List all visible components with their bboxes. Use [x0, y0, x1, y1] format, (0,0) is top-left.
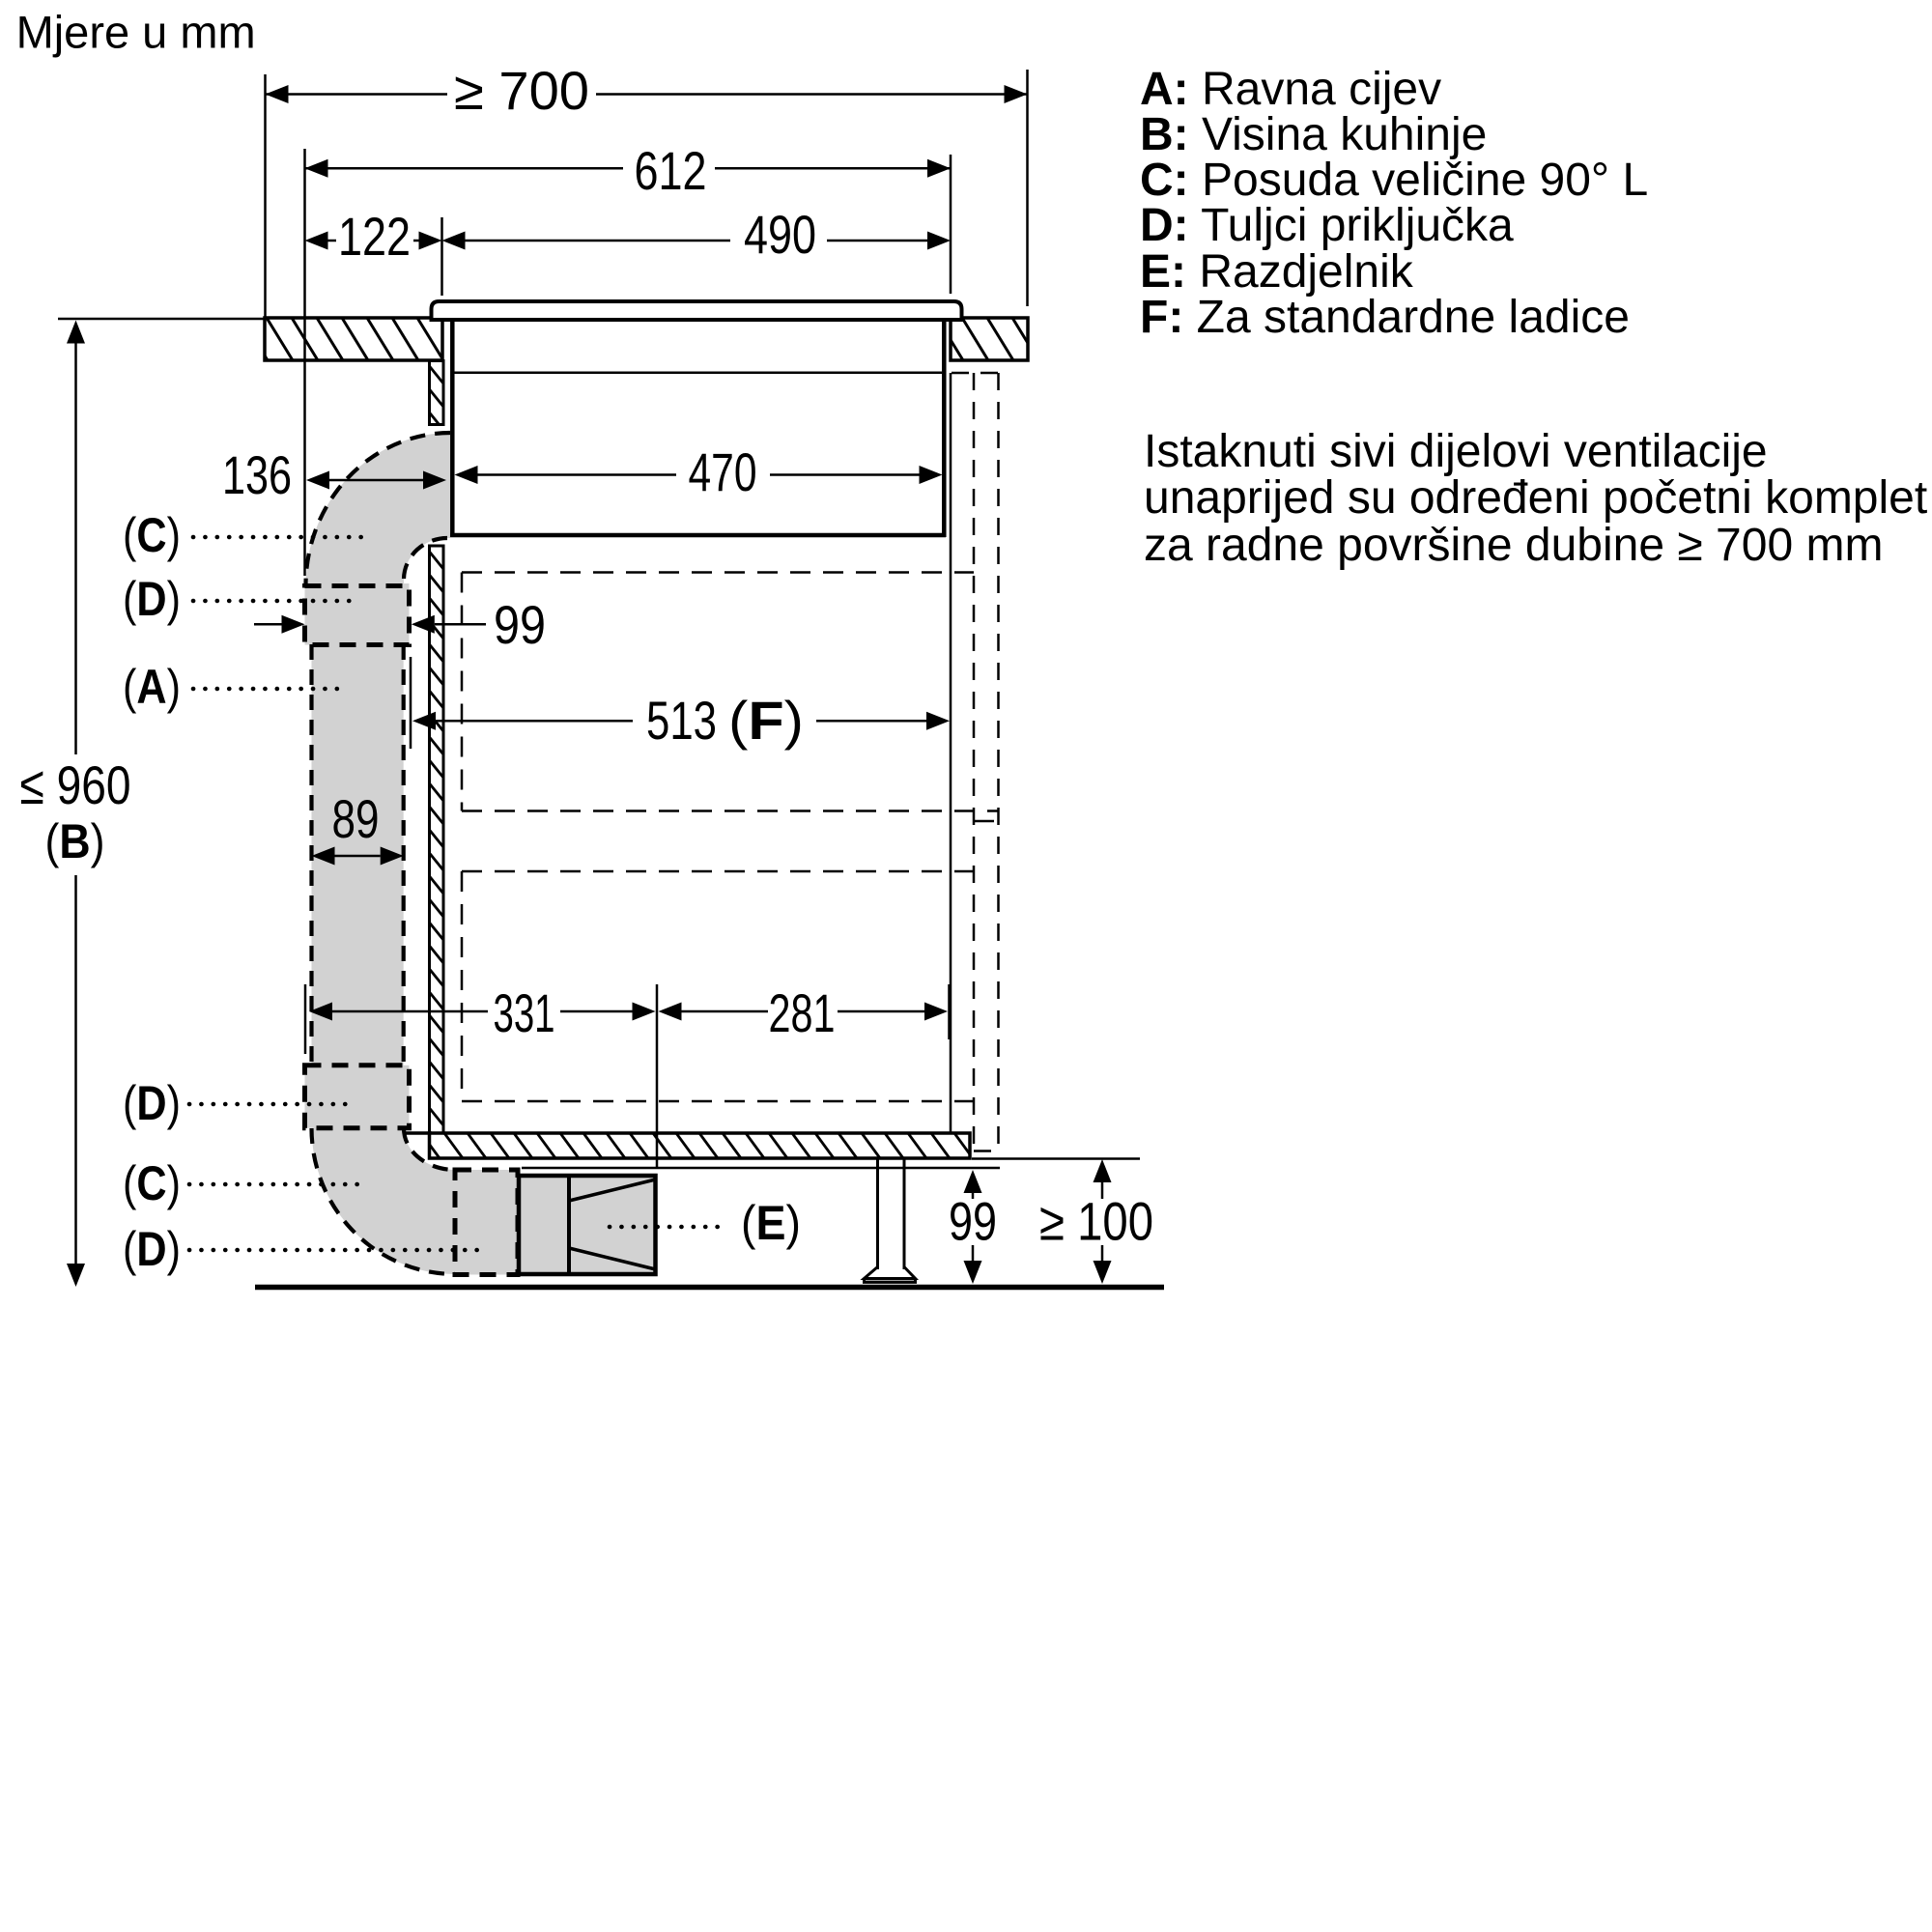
svg-text:89: 89 — [332, 788, 380, 849]
svg-text:281: 281 — [769, 982, 836, 1043]
svg-text:136: 136 — [222, 444, 292, 505]
svg-text:470: 470 — [689, 441, 757, 502]
svg-text:C: Posuda veličine 90° L: C: Posuda veličine 90° L — [1140, 155, 1648, 206]
svg-text:612: 612 — [635, 140, 707, 201]
svg-text:F: Za standardne ladice: F: Za standardne ladice — [1140, 292, 1630, 343]
svg-text:(C): (C) — [123, 508, 181, 562]
svg-text:490: 490 — [744, 204, 816, 265]
svg-text:(D): (D) — [123, 572, 181, 626]
svg-text:≥ 100: ≥ 100 — [1039, 1191, 1153, 1252]
svg-text:unaprijed su određeni početni: unaprijed su određeni početni komplet — [1144, 472, 1927, 524]
svg-text:(E): (E) — [741, 1196, 801, 1250]
svg-text:(A): (A) — [123, 660, 181, 714]
svg-text:za radne površine dubine ≥ 700: za radne površine dubine ≥ 700 mm — [1144, 520, 1883, 571]
svg-text:99: 99 — [949, 1191, 997, 1252]
svg-text:(B): (B) — [45, 814, 105, 868]
svg-text:≥ 700: ≥ 700 — [454, 60, 589, 121]
svg-text:(D): (D) — [123, 1076, 181, 1130]
svg-text:513: 513 — [646, 690, 717, 751]
svg-text:331: 331 — [494, 982, 555, 1043]
svg-text:99: 99 — [494, 594, 546, 655]
svg-text:(F): (F) — [728, 690, 804, 751]
svg-text:Mjere u mm: Mjere u mm — [16, 7, 256, 58]
svg-text:≤ 960: ≤ 960 — [20, 754, 131, 815]
svg-text:B: Visina kuhinje: B: Visina kuhinje — [1140, 109, 1487, 160]
svg-text:A: Ravna cijev: A: Ravna cijev — [1140, 64, 1441, 115]
svg-text:D: Tuljci priključka: D: Tuljci priključka — [1140, 200, 1514, 251]
svg-text:(D): (D) — [123, 1222, 181, 1276]
svg-text:Istaknuti sivi dijelovi ventil: Istaknuti sivi dijelovi ventilacije — [1144, 426, 1768, 477]
svg-text:E: Razdjelnik: E: Razdjelnik — [1140, 246, 1414, 298]
svg-text:(C): (C) — [123, 1156, 181, 1210]
svg-text:122: 122 — [338, 206, 411, 267]
